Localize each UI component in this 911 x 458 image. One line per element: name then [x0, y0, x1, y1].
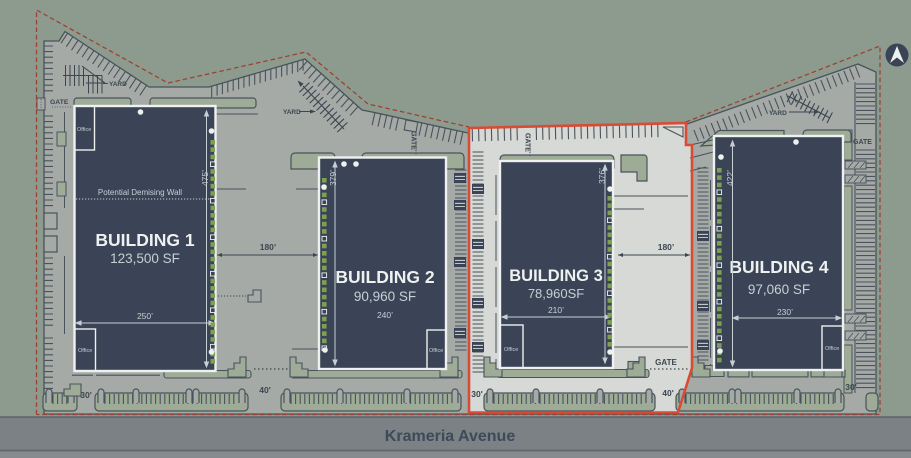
svg-text:GATE: GATE — [410, 131, 417, 150]
svg-text:210’: 210’ — [548, 305, 564, 315]
svg-text:GATE: GATE — [853, 139, 872, 146]
svg-text:BUILDING 1: BUILDING 1 — [95, 230, 194, 250]
svg-text:Office: Office — [825, 346, 839, 352]
svg-text:250’: 250’ — [137, 311, 153, 321]
svg-text:30': 30' — [845, 382, 856, 392]
svg-text:BUILDING 4: BUILDING 4 — [729, 257, 828, 277]
svg-text:422’: 422’ — [725, 170, 735, 186]
svg-text:YARD: YARD — [109, 81, 127, 88]
svg-text:GATE: GATE — [524, 133, 531, 152]
svg-text:BUILDING 2: BUILDING 2 — [335, 267, 434, 287]
svg-text:475’: 475’ — [200, 170, 210, 186]
svg-text:30': 30' — [80, 390, 91, 400]
svg-text:40': 40' — [662, 388, 673, 398]
svg-text:Office: Office — [504, 347, 518, 353]
svg-text:YARD: YARD — [283, 109, 301, 116]
svg-text:GATE: GATE — [655, 358, 677, 367]
svg-text:230’: 230’ — [777, 307, 793, 317]
svg-text:Potential Demising Wall: Potential Demising Wall — [98, 188, 182, 197]
svg-text:180’: 180’ — [260, 242, 277, 252]
svg-text:90,960 SF: 90,960 SF — [354, 289, 416, 304]
svg-text:YARD: YARD — [769, 110, 787, 117]
svg-text:Office: Office — [77, 127, 91, 133]
svg-text:376’: 376’ — [597, 168, 607, 184]
svg-text:GATE: GATE — [50, 99, 69, 106]
svg-text:40': 40' — [259, 385, 270, 395]
svg-text:Office: Office — [429, 348, 443, 354]
svg-text:30': 30' — [471, 389, 482, 399]
svg-text:78,960SF: 78,960SF — [528, 286, 584, 301]
svg-text:97,060 SF: 97,060 SF — [748, 282, 810, 297]
svg-text:123,500 SF: 123,500 SF — [110, 251, 180, 266]
svg-text:Office: Office — [78, 348, 92, 354]
svg-text:BUILDING 3: BUILDING 3 — [509, 267, 603, 285]
svg-text:Krameria Avenue: Krameria Avenue — [385, 428, 516, 445]
svg-text:379’: 379’ — [328, 170, 338, 186]
svg-text:180’: 180’ — [658, 242, 675, 252]
svg-text:240’: 240’ — [377, 310, 393, 320]
